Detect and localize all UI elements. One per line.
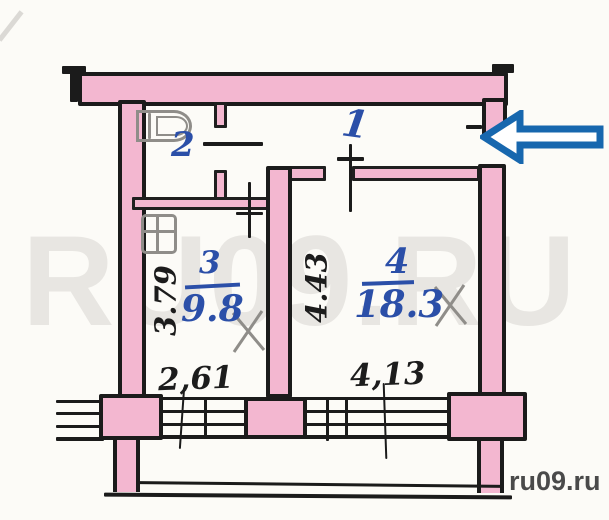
living-door-tick	[349, 144, 352, 212]
entrance-arrow-icon	[480, 110, 604, 164]
bath-door-tick	[203, 142, 263, 146]
dim-kitchen-width: 2,61	[157, 363, 234, 397]
room-label-bath: 2	[171, 128, 195, 162]
window-ext-line-1	[56, 400, 104, 403]
scan-artifact	[0, 10, 24, 41]
kitchen-door-tick	[248, 182, 251, 238]
room-label-living: 4	[385, 244, 409, 279]
living-door-tick-cross	[337, 157, 364, 161]
dim-living-width: 4,13	[349, 359, 426, 393]
pillar-middle	[244, 397, 307, 439]
sink-icon-divider-h	[143, 230, 175, 233]
wall-living-top-right	[352, 166, 480, 181]
sink-icon-divider-v	[156, 216, 159, 252]
wall-kitchen-top	[132, 197, 278, 210]
dim-kitchen-depth: 3.79	[152, 251, 181, 351]
watermark-small: ru09.ru	[509, 466, 601, 497]
wall-kitchen-living-divider	[266, 166, 292, 398]
window-ext-line-2	[56, 412, 104, 415]
window-ext-line-4	[56, 437, 104, 441]
floor-plan-scan: RU09.RU	[0, 0, 609, 520]
wall-right	[478, 164, 506, 396]
window-b-mullion-1	[326, 397, 329, 441]
dim-living-depth: 4.43	[303, 238, 332, 338]
kitchen-door-tick-cross	[236, 212, 263, 215]
wall-top-left-cap-vertical	[70, 66, 78, 102]
room-area-kitchen: 9.8	[181, 291, 244, 327]
balcony-rail-inner	[138, 481, 504, 488]
balcony-post-left	[113, 440, 140, 492]
room-area-living: 18.3	[354, 286, 444, 323]
pillar-left	[99, 394, 163, 440]
dim-line-living	[383, 383, 388, 459]
wall-bath-right-upper	[214, 102, 227, 128]
pillar-right	[447, 392, 527, 441]
sink-icon	[141, 214, 177, 254]
bathtub-icon-inner-line	[148, 113, 151, 139]
window-a-mullion	[204, 397, 207, 438]
wall-top-right-cap	[492, 64, 514, 73]
balcony-rail-outer	[104, 493, 512, 500]
window-b-mullion-2	[345, 397, 348, 438]
window-ext-line-3	[56, 425, 104, 428]
room-label-hall: 1	[339, 103, 370, 144]
room-label-kitchen: 3	[199, 248, 221, 279]
